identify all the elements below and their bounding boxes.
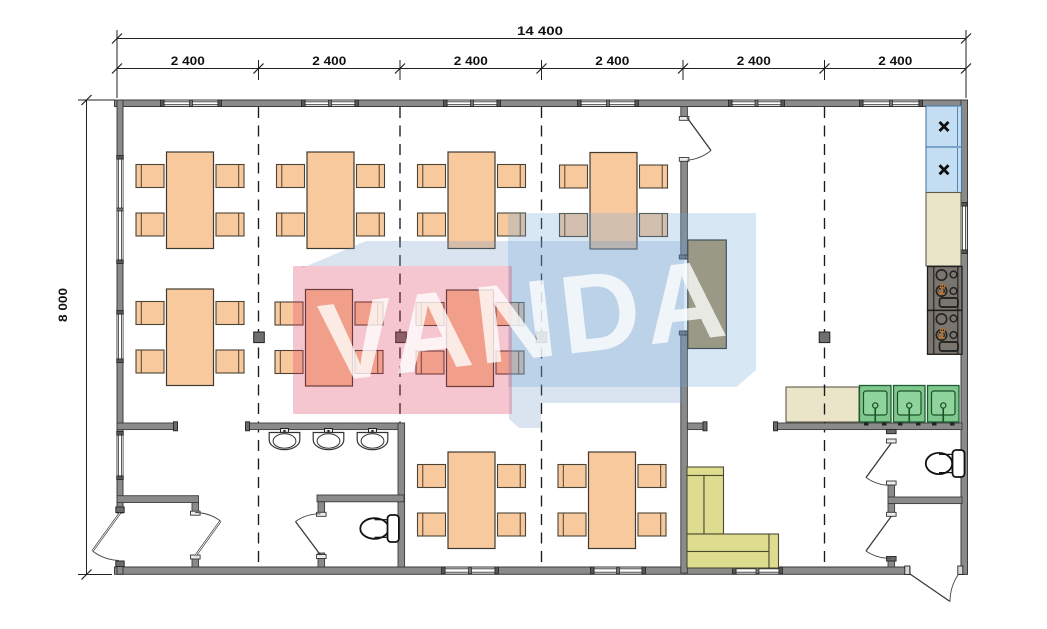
svg-text:Fe: Fe <box>937 328 948 339</box>
svg-text:2 400: 2 400 <box>171 54 205 68</box>
svg-text:8 000: 8 000 <box>56 288 70 322</box>
svg-text:2 400: 2 400 <box>737 54 771 68</box>
svg-text:2 400: 2 400 <box>312 54 346 68</box>
svg-text:2 400: 2 400 <box>454 54 488 68</box>
svg-text:Fe: Fe <box>937 284 948 295</box>
svg-text:2 400: 2 400 <box>878 54 912 68</box>
svg-text:2 400: 2 400 <box>595 54 629 68</box>
svg-text:14 400: 14 400 <box>517 24 563 38</box>
